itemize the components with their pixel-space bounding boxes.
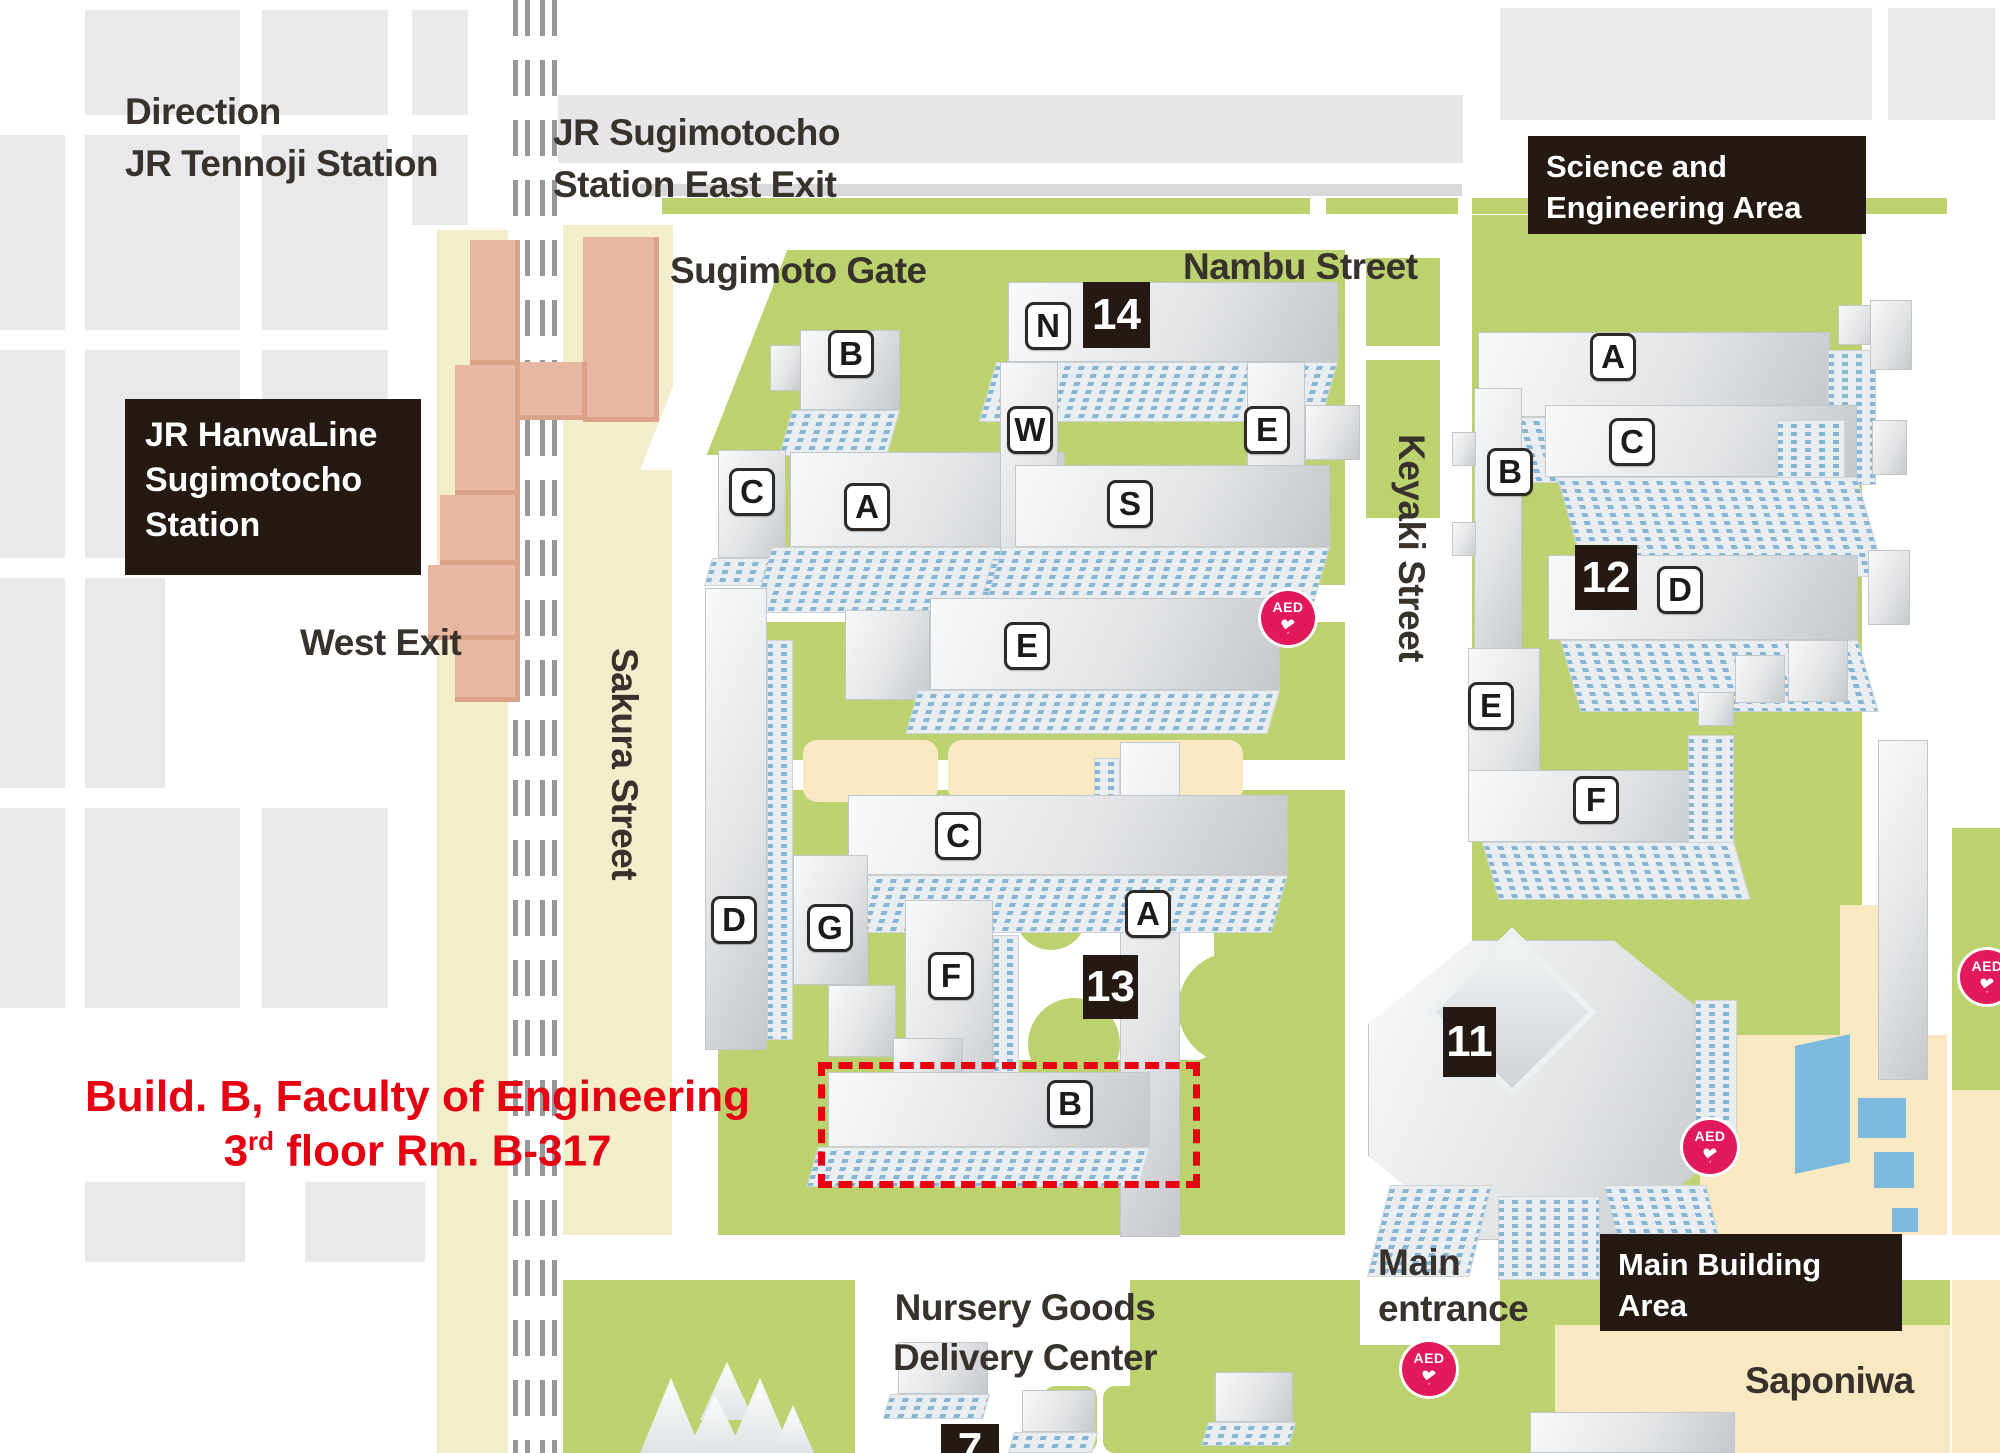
chip-letter: C xyxy=(946,817,970,855)
badge-12: 12 xyxy=(1575,545,1637,610)
building-label-w: W xyxy=(1007,406,1053,454)
building-annex xyxy=(1305,405,1360,460)
chip-letter: W xyxy=(1014,411,1045,449)
chip-letter: A xyxy=(1136,895,1160,933)
campus-map: B C A N W E S E C D G F A B A C B D E F … xyxy=(0,0,2000,1453)
place-line: Main xyxy=(1378,1240,1528,1286)
direction-line: JR Sugimotocho xyxy=(553,107,840,159)
chip-letter: A xyxy=(1601,338,1625,376)
building-annex xyxy=(845,610,930,700)
building-roof-s xyxy=(1015,465,1330,547)
chip-letter: C xyxy=(1620,423,1644,461)
chip-letter: N xyxy=(1036,307,1060,345)
station-platform xyxy=(455,640,520,702)
aed-icon: AED♥ xyxy=(1261,591,1315,645)
city-block xyxy=(85,1182,245,1262)
aed-icon: AED♥ xyxy=(1402,1342,1456,1396)
nursery-center-label: Nursery Goods Delivery Center xyxy=(860,1283,1190,1383)
saponiwa-label: Saponiwa xyxy=(1745,1360,1914,1402)
building-slab xyxy=(1530,1412,1735,1453)
building-annex xyxy=(1698,692,1734,726)
chip-letter: G xyxy=(817,909,843,947)
building-label-a: A xyxy=(844,483,890,531)
badge-7: 7 xyxy=(941,1424,999,1453)
building-narrow-tall xyxy=(1878,740,1928,1080)
building-annex xyxy=(1870,300,1912,370)
chip-letter: C xyxy=(740,473,764,511)
building-facade xyxy=(1008,1432,1098,1453)
plaza xyxy=(1952,1090,2000,1240)
water-feature xyxy=(1795,1034,1850,1174)
annotation-sup: rd xyxy=(248,1126,274,1156)
building-roof-d-tower xyxy=(705,588,767,1050)
direction-line: Direction xyxy=(125,86,438,138)
street-label-sugimoto-gate: Sugimoto Gate xyxy=(670,250,927,292)
water-feature xyxy=(1858,1098,1906,1138)
building-roof-sci-b xyxy=(1474,388,1522,658)
city-block xyxy=(85,808,240,1008)
building-annex xyxy=(1452,522,1476,556)
building-facade xyxy=(905,690,1280,734)
badge-science-area: Science and Engineering Area xyxy=(1528,136,1866,234)
chip-letter: F xyxy=(941,957,961,995)
heart-icon: ♥ xyxy=(1280,614,1295,636)
building-label-sci-e: E xyxy=(1468,682,1514,730)
building-facade xyxy=(767,640,793,1040)
building-label-n: N xyxy=(1025,302,1071,350)
heart-icon: ♥ xyxy=(1421,1365,1436,1387)
building-annex xyxy=(1872,420,1907,475)
badge-13: 13 xyxy=(1083,955,1138,1019)
city-block xyxy=(0,350,65,558)
city-block xyxy=(0,135,65,330)
badge-line: Science and xyxy=(1546,147,1848,188)
building-label-s: S xyxy=(1107,480,1153,528)
badge-number: 13 xyxy=(1086,962,1135,1012)
chip-letter: A xyxy=(855,488,879,526)
annotation-line1: Build. B, Faculty of Engineering xyxy=(35,1072,800,1122)
building-label-e-quad: E xyxy=(1244,406,1290,454)
chip-letter: B xyxy=(1498,453,1522,491)
courtyard xyxy=(803,740,938,802)
chip-letter: E xyxy=(1016,627,1038,665)
city-block xyxy=(262,808,388,1008)
city-block xyxy=(85,578,165,788)
heart-icon: ♥ xyxy=(1702,1143,1717,1165)
railway-track xyxy=(513,0,530,1453)
direction-line: Station East Exit xyxy=(553,159,840,211)
building-label-sci-a: A xyxy=(1590,333,1636,381)
building-annex xyxy=(1735,655,1785,703)
badge-line: Area xyxy=(1618,1286,1884,1327)
building-label-e-mid: E xyxy=(1004,622,1050,670)
building-annex xyxy=(1452,432,1476,466)
station-platform xyxy=(440,495,520,565)
badge-number: 12 xyxy=(1582,553,1631,603)
building-small xyxy=(1215,1372,1293,1422)
place-line: Nursery Goods xyxy=(860,1283,1190,1333)
badge-number: 7 xyxy=(958,1424,982,1453)
water-feature xyxy=(1874,1152,1914,1188)
street-label-nambu: Nambu Street xyxy=(1183,246,1418,288)
building-label-c-small: C xyxy=(729,468,775,516)
place-line: entrance xyxy=(1378,1286,1528,1332)
chip-letter: S xyxy=(1119,485,1141,523)
building-facade xyxy=(883,1394,990,1419)
annotation-line2: 3rd floor Rm. B-317 xyxy=(35,1126,800,1177)
street-label-sakura: Sakura Street xyxy=(603,648,645,978)
building-label-c-mid: C xyxy=(935,812,981,860)
building-small xyxy=(1022,1390,1096,1432)
building-label-f: F xyxy=(928,952,974,1000)
annotation-part: floor Rm. B-317 xyxy=(274,1127,611,1176)
building-roof-e-mid xyxy=(930,598,1280,690)
building-label-a-tower: A xyxy=(1125,890,1171,938)
direction-tennoji: Direction JR Tennoji Station xyxy=(125,86,438,190)
badge-line: Main Building xyxy=(1618,1245,1884,1286)
main-entrance-label: Main entrance xyxy=(1378,1240,1528,1333)
station-building xyxy=(583,237,659,422)
city-block xyxy=(305,1182,425,1262)
building-annex xyxy=(770,345,802,391)
building-label-sci-b: B xyxy=(1487,448,1533,496)
city-block xyxy=(0,578,65,788)
badge-line: Sugimotocho xyxy=(145,458,401,503)
chip-letter: D xyxy=(1668,571,1692,609)
badge-line: JR HanwaLine xyxy=(145,413,401,458)
building-facade xyxy=(779,410,900,456)
street-label-keyaki: Keyaki Street xyxy=(1390,434,1432,924)
building-label-b-top: B xyxy=(828,330,874,378)
chip-letter: E xyxy=(1256,411,1278,449)
station-platform xyxy=(455,365,520,495)
badge-11: 11 xyxy=(1443,1007,1496,1077)
building-label-sci-f: F xyxy=(1573,776,1619,824)
hedge xyxy=(1103,1386,1157,1453)
direction-east-exit: JR Sugimotocho Station East Exit xyxy=(553,107,840,211)
chip-letter: E xyxy=(1480,687,1502,725)
station-platform xyxy=(470,240,520,365)
chip-letter: D xyxy=(722,901,746,939)
badge-main-building-area: Main Building Area xyxy=(1600,1234,1902,1331)
badge-hanwa-station: JR HanwaLine Sugimotocho Station xyxy=(125,399,421,575)
badge-number: 11 xyxy=(1446,1017,1493,1067)
city-block xyxy=(0,808,65,1008)
west-exit-label: West Exit xyxy=(300,622,461,664)
badge-line: Station xyxy=(145,503,401,548)
city-block xyxy=(1500,8,1872,120)
railway-track xyxy=(540,0,557,1453)
highlight-dashed-box xyxy=(818,1062,1200,1188)
direction-line: JR Tennoji Station xyxy=(125,138,438,190)
annotation-part: 3 xyxy=(224,1127,248,1176)
chip-letter: F xyxy=(1586,781,1606,819)
building-facade xyxy=(819,875,1288,933)
tree-circle xyxy=(1178,952,1290,1064)
water-feature xyxy=(1892,1208,1918,1232)
heart-icon: ♥ xyxy=(1979,973,1994,995)
badge-number: 14 xyxy=(1092,290,1141,340)
building-label-sci-c: C xyxy=(1609,418,1655,466)
street-verge xyxy=(1326,198,1458,214)
building-annex xyxy=(1788,640,1848,702)
building-facade xyxy=(1201,1422,1296,1446)
building-label-g: G xyxy=(807,904,853,952)
building-roof-c-mid xyxy=(848,795,1288,875)
badge-14: 14 xyxy=(1083,282,1150,348)
city-block xyxy=(1888,8,1995,120)
building-label-sci-d: D xyxy=(1657,566,1703,614)
place-line: Delivery Center xyxy=(860,1333,1190,1383)
aed-icon: AED♥ xyxy=(1683,1120,1737,1174)
building-annex xyxy=(1868,550,1910,625)
badge-line: Engineering Area xyxy=(1546,188,1848,229)
building-label-d: D xyxy=(711,896,757,944)
building-facade xyxy=(1482,842,1751,900)
chip-letter: B xyxy=(839,335,863,373)
building-annex xyxy=(828,985,896,1057)
plaza xyxy=(1952,1280,2000,1453)
